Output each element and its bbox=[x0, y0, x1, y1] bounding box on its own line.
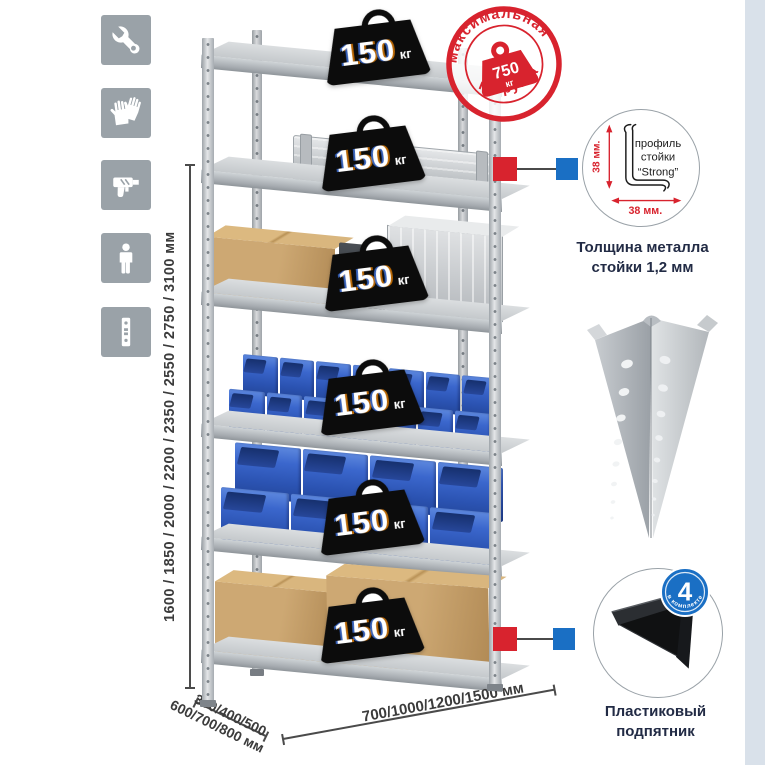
blue-marker-bottom bbox=[553, 628, 575, 650]
load-value: 150 bbox=[339, 32, 398, 74]
shelf-load-badge: 150кг bbox=[313, 110, 427, 192]
profile-label-3: “Strong” bbox=[638, 166, 679, 178]
icon-tile-person bbox=[101, 233, 151, 283]
load-value: 150 bbox=[333, 382, 392, 424]
load-unit: кг bbox=[394, 151, 408, 167]
person-icon bbox=[108, 240, 144, 276]
foot-caption-line1: Пластиковый bbox=[605, 703, 706, 720]
icon-tile-post bbox=[101, 307, 151, 357]
profile-dim-horizontal: 38 мм. bbox=[628, 205, 662, 217]
load-unit: кг bbox=[393, 395, 407, 411]
right-edge-strip bbox=[745, 0, 765, 765]
rack-post-icon bbox=[108, 314, 144, 350]
shelf-load-badge: 150кг bbox=[318, 4, 432, 86]
connector-line-bottom bbox=[512, 638, 558, 640]
load-unit: кг bbox=[399, 45, 413, 61]
red-marker-bottom bbox=[493, 627, 517, 651]
icon-tile-drill bbox=[101, 160, 151, 210]
included-count-badge: 4 в комплекте bbox=[659, 566, 711, 618]
corner-post-image bbox=[585, 300, 721, 550]
load-unit: кг bbox=[397, 271, 411, 287]
profile-dim-vertical: 38 мм. bbox=[592, 141, 603, 173]
count-value: 4 bbox=[678, 577, 693, 607]
icon-tile-gloves bbox=[101, 88, 151, 138]
profile-label-2: стойки bbox=[641, 152, 675, 164]
profile-caption-line2: стойки 1,2 мм bbox=[592, 259, 694, 276]
shelving-infographic: 1600 / 1850 / 2000 / 2200 / 2350 / 2550 … bbox=[0, 0, 765, 765]
drill-icon bbox=[108, 167, 144, 203]
wrench-icon bbox=[108, 22, 144, 58]
shelf-load-badge: 150кг bbox=[312, 474, 426, 556]
connector-line-top bbox=[512, 168, 562, 170]
profile-detail-circle: 38 мм. 38 мм. профиль стойки “Strong” bbox=[582, 109, 700, 227]
shelf-load-badge: 150кг bbox=[316, 230, 430, 312]
load-unit: кг bbox=[393, 515, 407, 531]
height-dimension-line bbox=[189, 165, 191, 688]
rack-post-front-right bbox=[489, 58, 501, 685]
dimension-arrowheads bbox=[606, 125, 681, 204]
gloves-icon bbox=[108, 95, 144, 131]
max-load-stamp: максимальная нагрузка 750 кг bbox=[430, 0, 578, 138]
height-dimension-label: 1600 / 1850 / 2000 / 2200 / 2350 / 2550 … bbox=[157, 165, 183, 688]
profile-caption: Толщина металла стойки 1,2 мм bbox=[560, 238, 725, 277]
profile-caption-line1: Толщина металла bbox=[576, 239, 708, 256]
foot-caption: Пластиковый подпятник bbox=[563, 702, 748, 741]
load-value: 150 bbox=[333, 610, 392, 652]
foot-caption-line2: подпятник bbox=[616, 723, 695, 740]
depth-dimension-label: 300/400/500 600/700/800 мм bbox=[147, 672, 307, 765]
profile-label-1: профиль bbox=[635, 138, 681, 150]
load-value: 150 bbox=[337, 258, 396, 300]
load-unit: кг bbox=[393, 623, 407, 639]
load-value: 150 bbox=[334, 138, 393, 180]
red-marker-top bbox=[493, 157, 517, 181]
icon-tile-tools bbox=[101, 15, 151, 65]
load-value: 150 bbox=[333, 502, 392, 544]
depth-label-line2: 600/700/800 мм bbox=[135, 680, 300, 765]
shelf-load-badge: 150кг bbox=[312, 582, 426, 664]
blue-marker-top bbox=[556, 158, 578, 180]
rack-post-front-left bbox=[202, 38, 214, 701]
shelf-load-badge: 150кг bbox=[312, 354, 426, 436]
